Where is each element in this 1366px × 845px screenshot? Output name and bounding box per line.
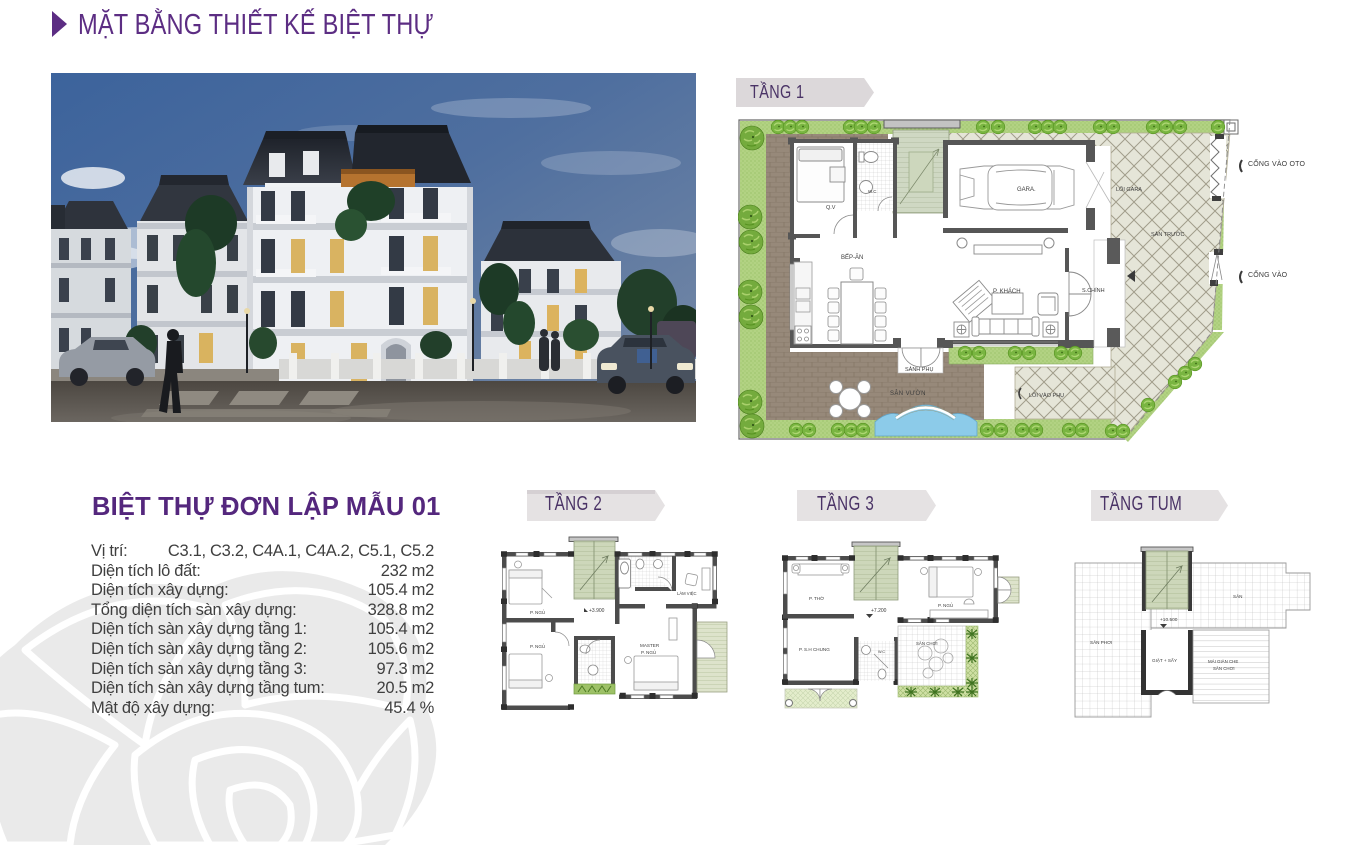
svg-text:W.C: W.C: [868, 189, 877, 194]
svg-text:LÀM VIỆC: LÀM VIỆC: [677, 591, 697, 596]
svg-text:BẾP-ĂN: BẾP-ĂN: [841, 254, 863, 261]
svg-text:SẢNH PHỤ: SẢNH PHỤ: [905, 366, 933, 373]
svg-text:P. NGỦ: P. NGỦ: [530, 609, 545, 615]
svg-text:+3.900: +3.900: [589, 608, 605, 614]
svg-text:P. S.H CHUNG: P. S.H CHUNG: [799, 647, 830, 652]
svg-text:P. NGỦ: P. NGỦ: [641, 649, 656, 655]
svg-text:LỐI VÀO PHỤ: LỐI VÀO PHỤ: [1029, 392, 1064, 399]
svg-text:+10.500: +10.500: [1160, 617, 1178, 623]
svg-text:S.CHÍNH: S.CHÍNH: [1082, 287, 1105, 294]
svg-text:P. THỜ: P. THỜ: [809, 595, 824, 601]
svg-text:W.C: W.C: [878, 650, 885, 654]
svg-text:P. NGỦ: P. NGỦ: [530, 643, 545, 649]
svg-text:P. KHÁCH: P. KHÁCH: [993, 288, 1021, 295]
svg-text:SÂN VƯỜN: SÂN VƯỜN: [890, 390, 926, 397]
svg-text:Q.V: Q.V: [826, 205, 836, 211]
svg-text:MASTER: MASTER: [640, 643, 660, 648]
svg-text:MÁI GIÀN CHE: MÁI GIÀN CHE: [1208, 659, 1238, 664]
svg-text:GARA.: GARA.: [1017, 187, 1036, 193]
svg-text:P. NGỦ: P. NGỦ: [938, 602, 953, 608]
svg-text:SÂN TRƯỚC: SÂN TRƯỚC: [1151, 231, 1184, 238]
svg-text:+7.200: +7.200: [871, 608, 887, 614]
svg-text:SÂN CHƠI: SÂN CHƠI: [916, 641, 938, 646]
svg-text:GIẶT + SẤY: GIẶT + SẤY: [1152, 657, 1177, 663]
svg-text:SÂN: SÂN: [1233, 593, 1242, 599]
svg-text:LỐI GARA: LỐI GARA: [1116, 186, 1142, 193]
svg-text:SÂN PHƠI: SÂN PHƠI: [1090, 639, 1112, 645]
svg-text:SÂN CHƠI: SÂN CHƠI: [1213, 666, 1235, 671]
